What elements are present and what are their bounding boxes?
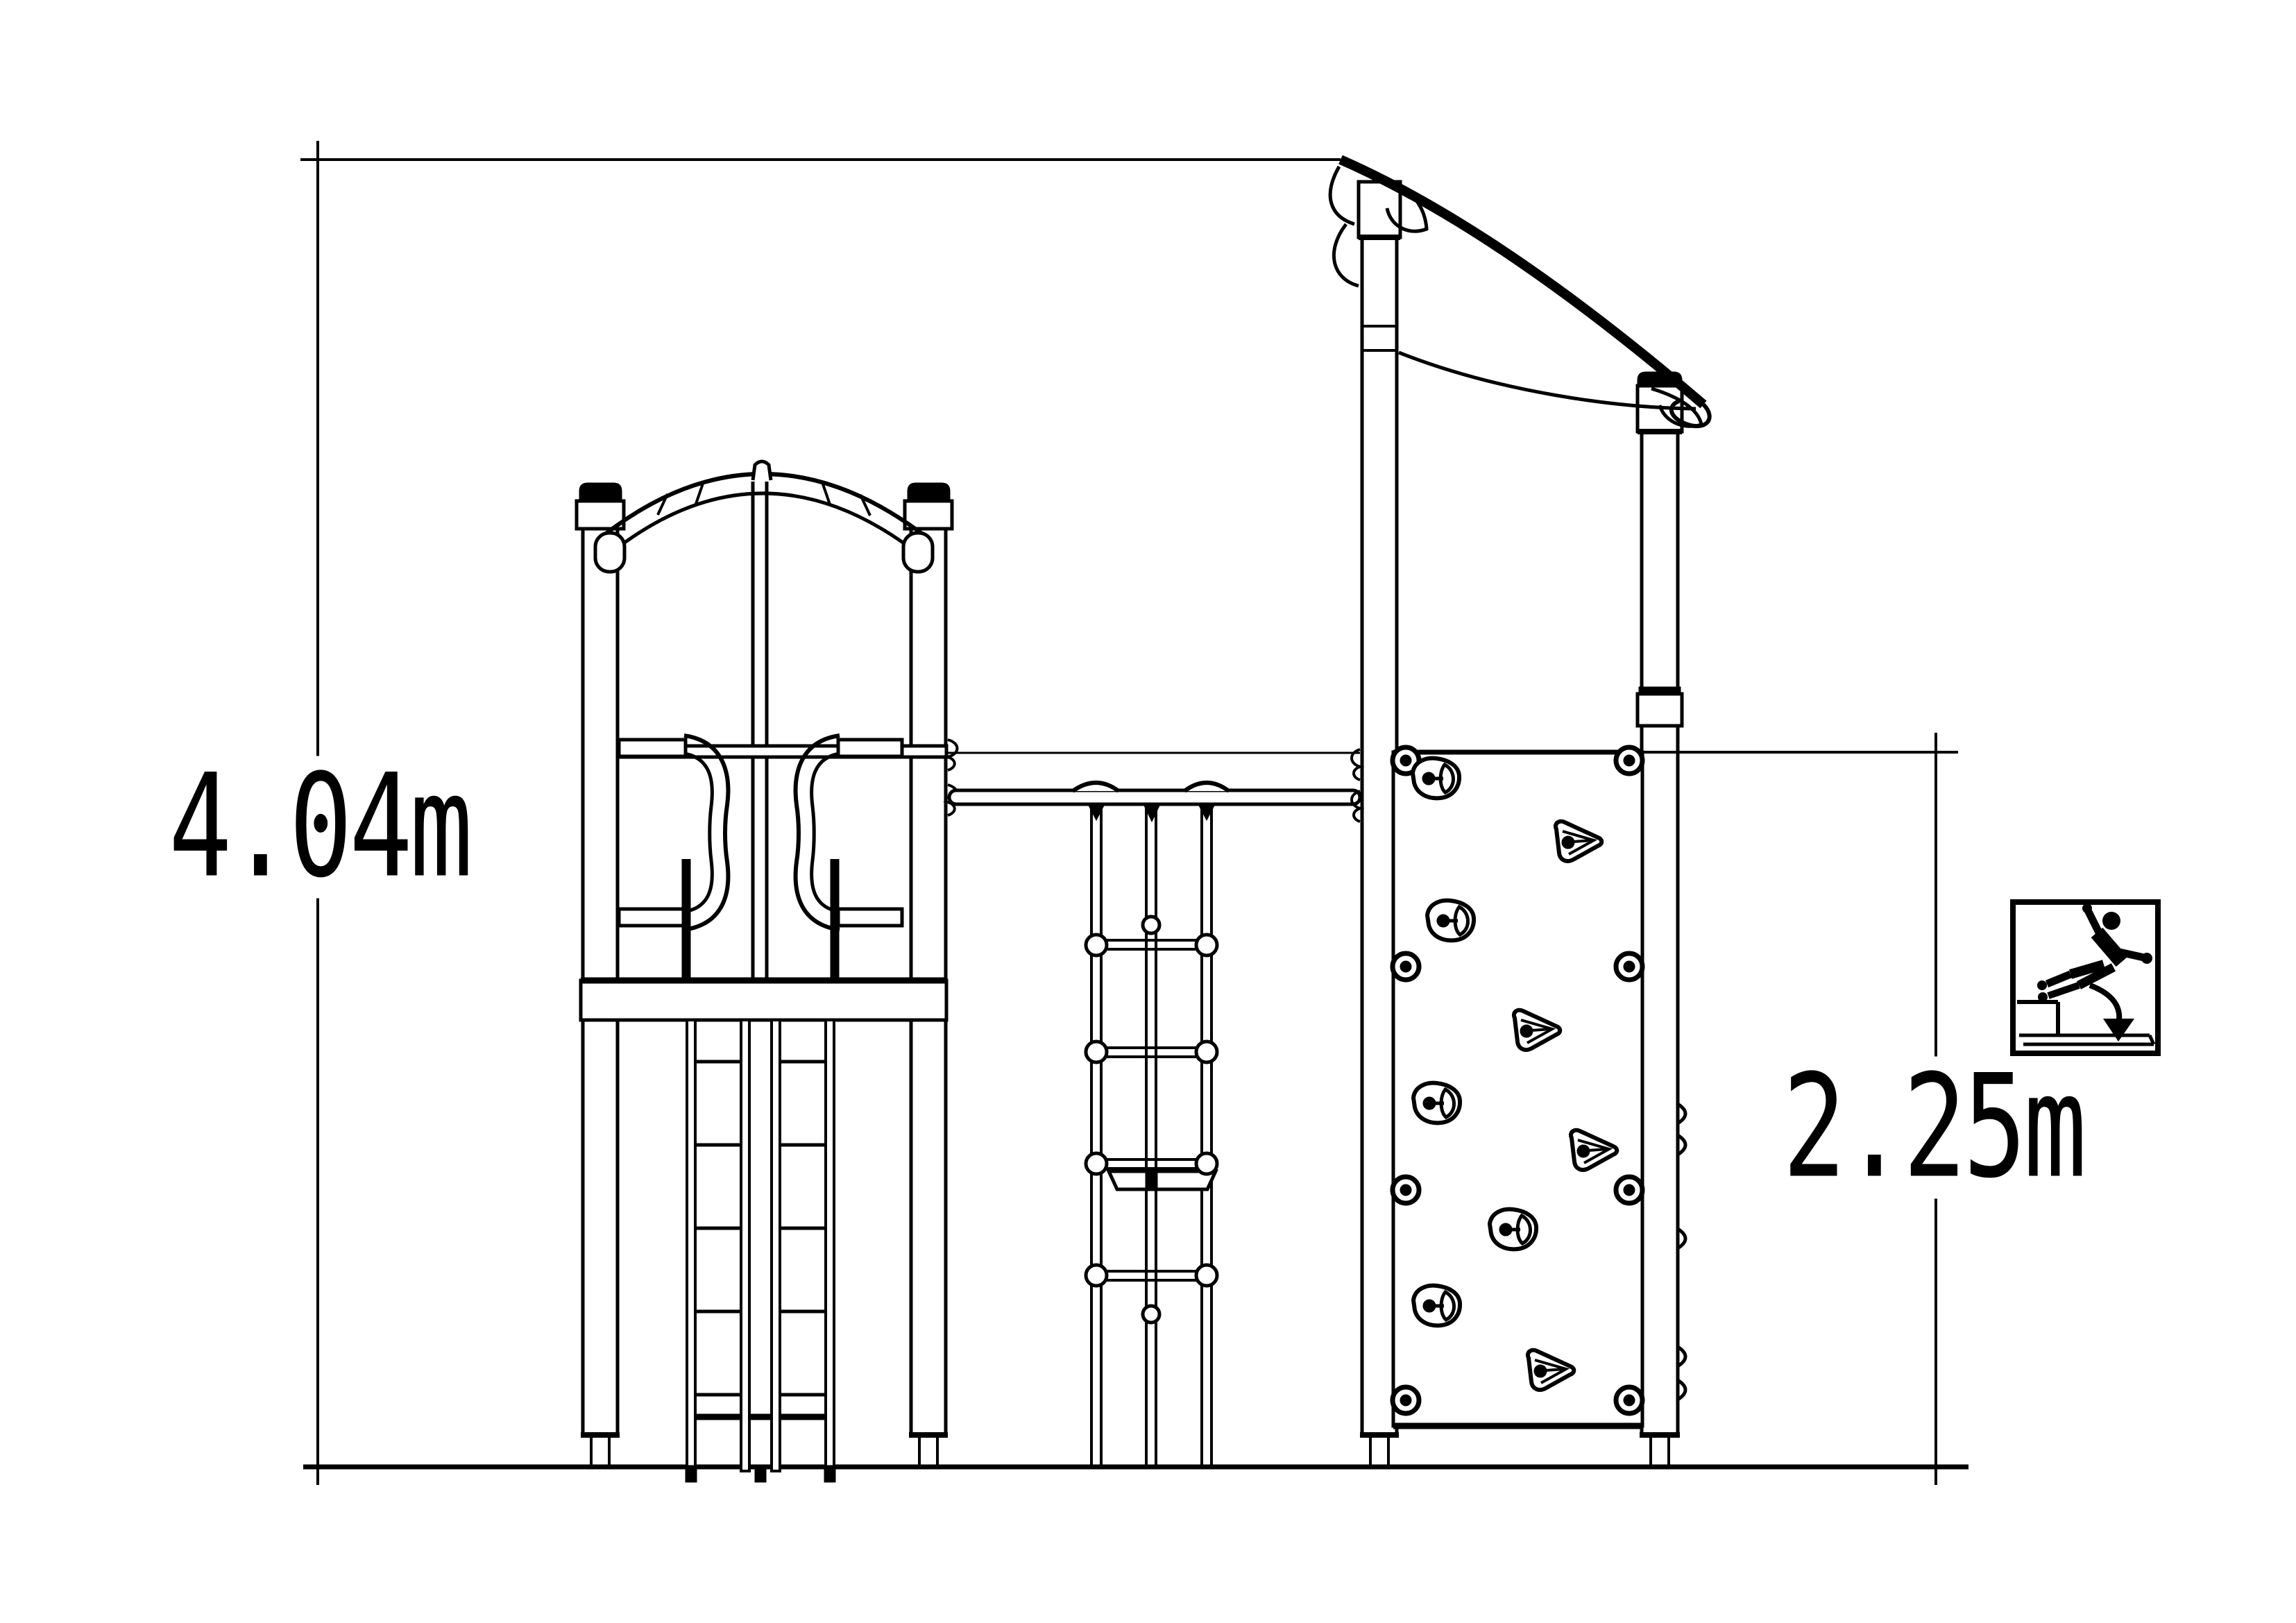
left-tower-center-pole: [753, 482, 767, 980]
technical-drawing-page: 4.04m 2.25m: [0, 0, 2296, 1623]
net-climber: [1086, 804, 1217, 1467]
right-tower: [1330, 160, 1709, 1467]
fall-height-label: 2.25m: [1776, 1057, 2091, 1199]
left-tower-arch: [595, 461, 933, 572]
left-tower: [577, 461, 958, 1482]
left-tower-ladder: [686, 1020, 835, 1482]
right-tower-right-post: [1638, 372, 1685, 1467]
left-grab-handle: [619, 736, 728, 930]
climbing-wall: [1393, 747, 1642, 1426]
middle-section: [946, 749, 1360, 1467]
falling-person-icon: [2013, 902, 2158, 1053]
left-tower-platform: [581, 980, 946, 1020]
right-grab-handle: [796, 736, 902, 930]
left-tower-posts: [577, 483, 952, 1467]
total-height-label: 4.04m: [162, 756, 477, 899]
